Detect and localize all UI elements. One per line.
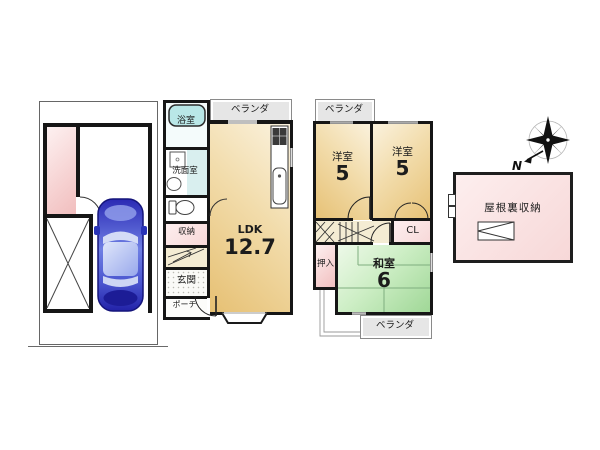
cross-brace (47, 219, 89, 308)
closet-label: CL (394, 226, 431, 237)
storage-label: 収納 (166, 228, 207, 237)
stairs-2f-lines (316, 222, 374, 242)
washitsu-size: 6 (337, 270, 431, 291)
linework-overlay: N (0, 0, 600, 450)
bay-window (222, 313, 267, 323)
toilet-icon (169, 201, 194, 215)
entrance-label: 玄関 (166, 276, 207, 286)
attic-ladder-icon (478, 222, 514, 240)
oshiire-label: 押入 (312, 260, 339, 269)
balcony-2f-bottom-label: ベランダ (360, 321, 430, 331)
porch-label: ポーチ (164, 301, 205, 309)
washing-machine (170, 152, 185, 167)
attic-label: 屋根裏収納 (453, 203, 573, 214)
sink (167, 178, 181, 191)
bath-label: 浴室 (166, 117, 206, 126)
washroom-label: 洗面室 (163, 167, 207, 176)
western1-size: 5 (313, 163, 372, 184)
north-arrow: N (512, 151, 543, 173)
western2-size: 5 (372, 158, 433, 179)
balcony-1f-label: ベランダ (210, 105, 290, 115)
kitchen-counter (271, 126, 288, 208)
balcony-2f-top-label: ベランダ (315, 105, 373, 115)
door-arc (210, 199, 227, 216)
car (94, 199, 147, 311)
stairs-1f-lines (168, 248, 204, 265)
floor-plan: N ベランダ 浴室 洗面室 収納 玄関 ポーチ LDK 12.7 ベランダ 洋室… (0, 0, 600, 450)
ldk-label: LDK (210, 224, 290, 236)
ldk-size: 12.7 (210, 236, 290, 258)
compass: N (512, 116, 570, 173)
north-label: N (512, 159, 522, 173)
kitchen-sink (273, 168, 286, 204)
